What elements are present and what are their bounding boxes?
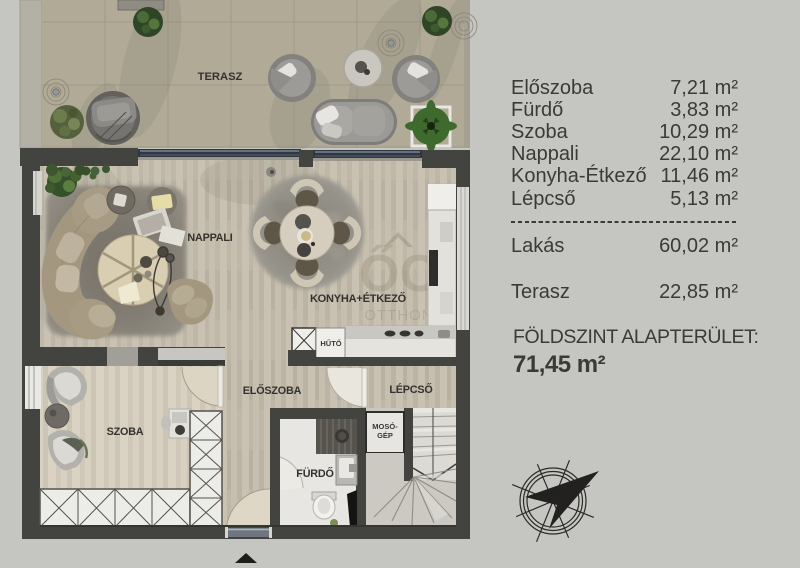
svg-text:HŰTŐ: HŰTŐ [320,339,341,348]
svg-text:NAPPALI: NAPPALI [187,232,232,244]
svg-text:LÉPCSŐ: LÉPCSŐ [389,383,432,396]
svg-text:SZOBA: SZOBA [107,426,144,438]
svg-text:GÉP: GÉP [377,431,393,440]
svg-text:ELŐSZOBA: ELŐSZOBA [243,384,302,397]
svg-text:ŐC: ŐC [359,244,437,303]
svg-text:TERASZ: TERASZ [198,71,243,83]
svg-text:MOSÓ-: MOSÓ- [372,422,398,431]
svg-text:FÜRDŐ: FÜRDŐ [296,467,333,480]
